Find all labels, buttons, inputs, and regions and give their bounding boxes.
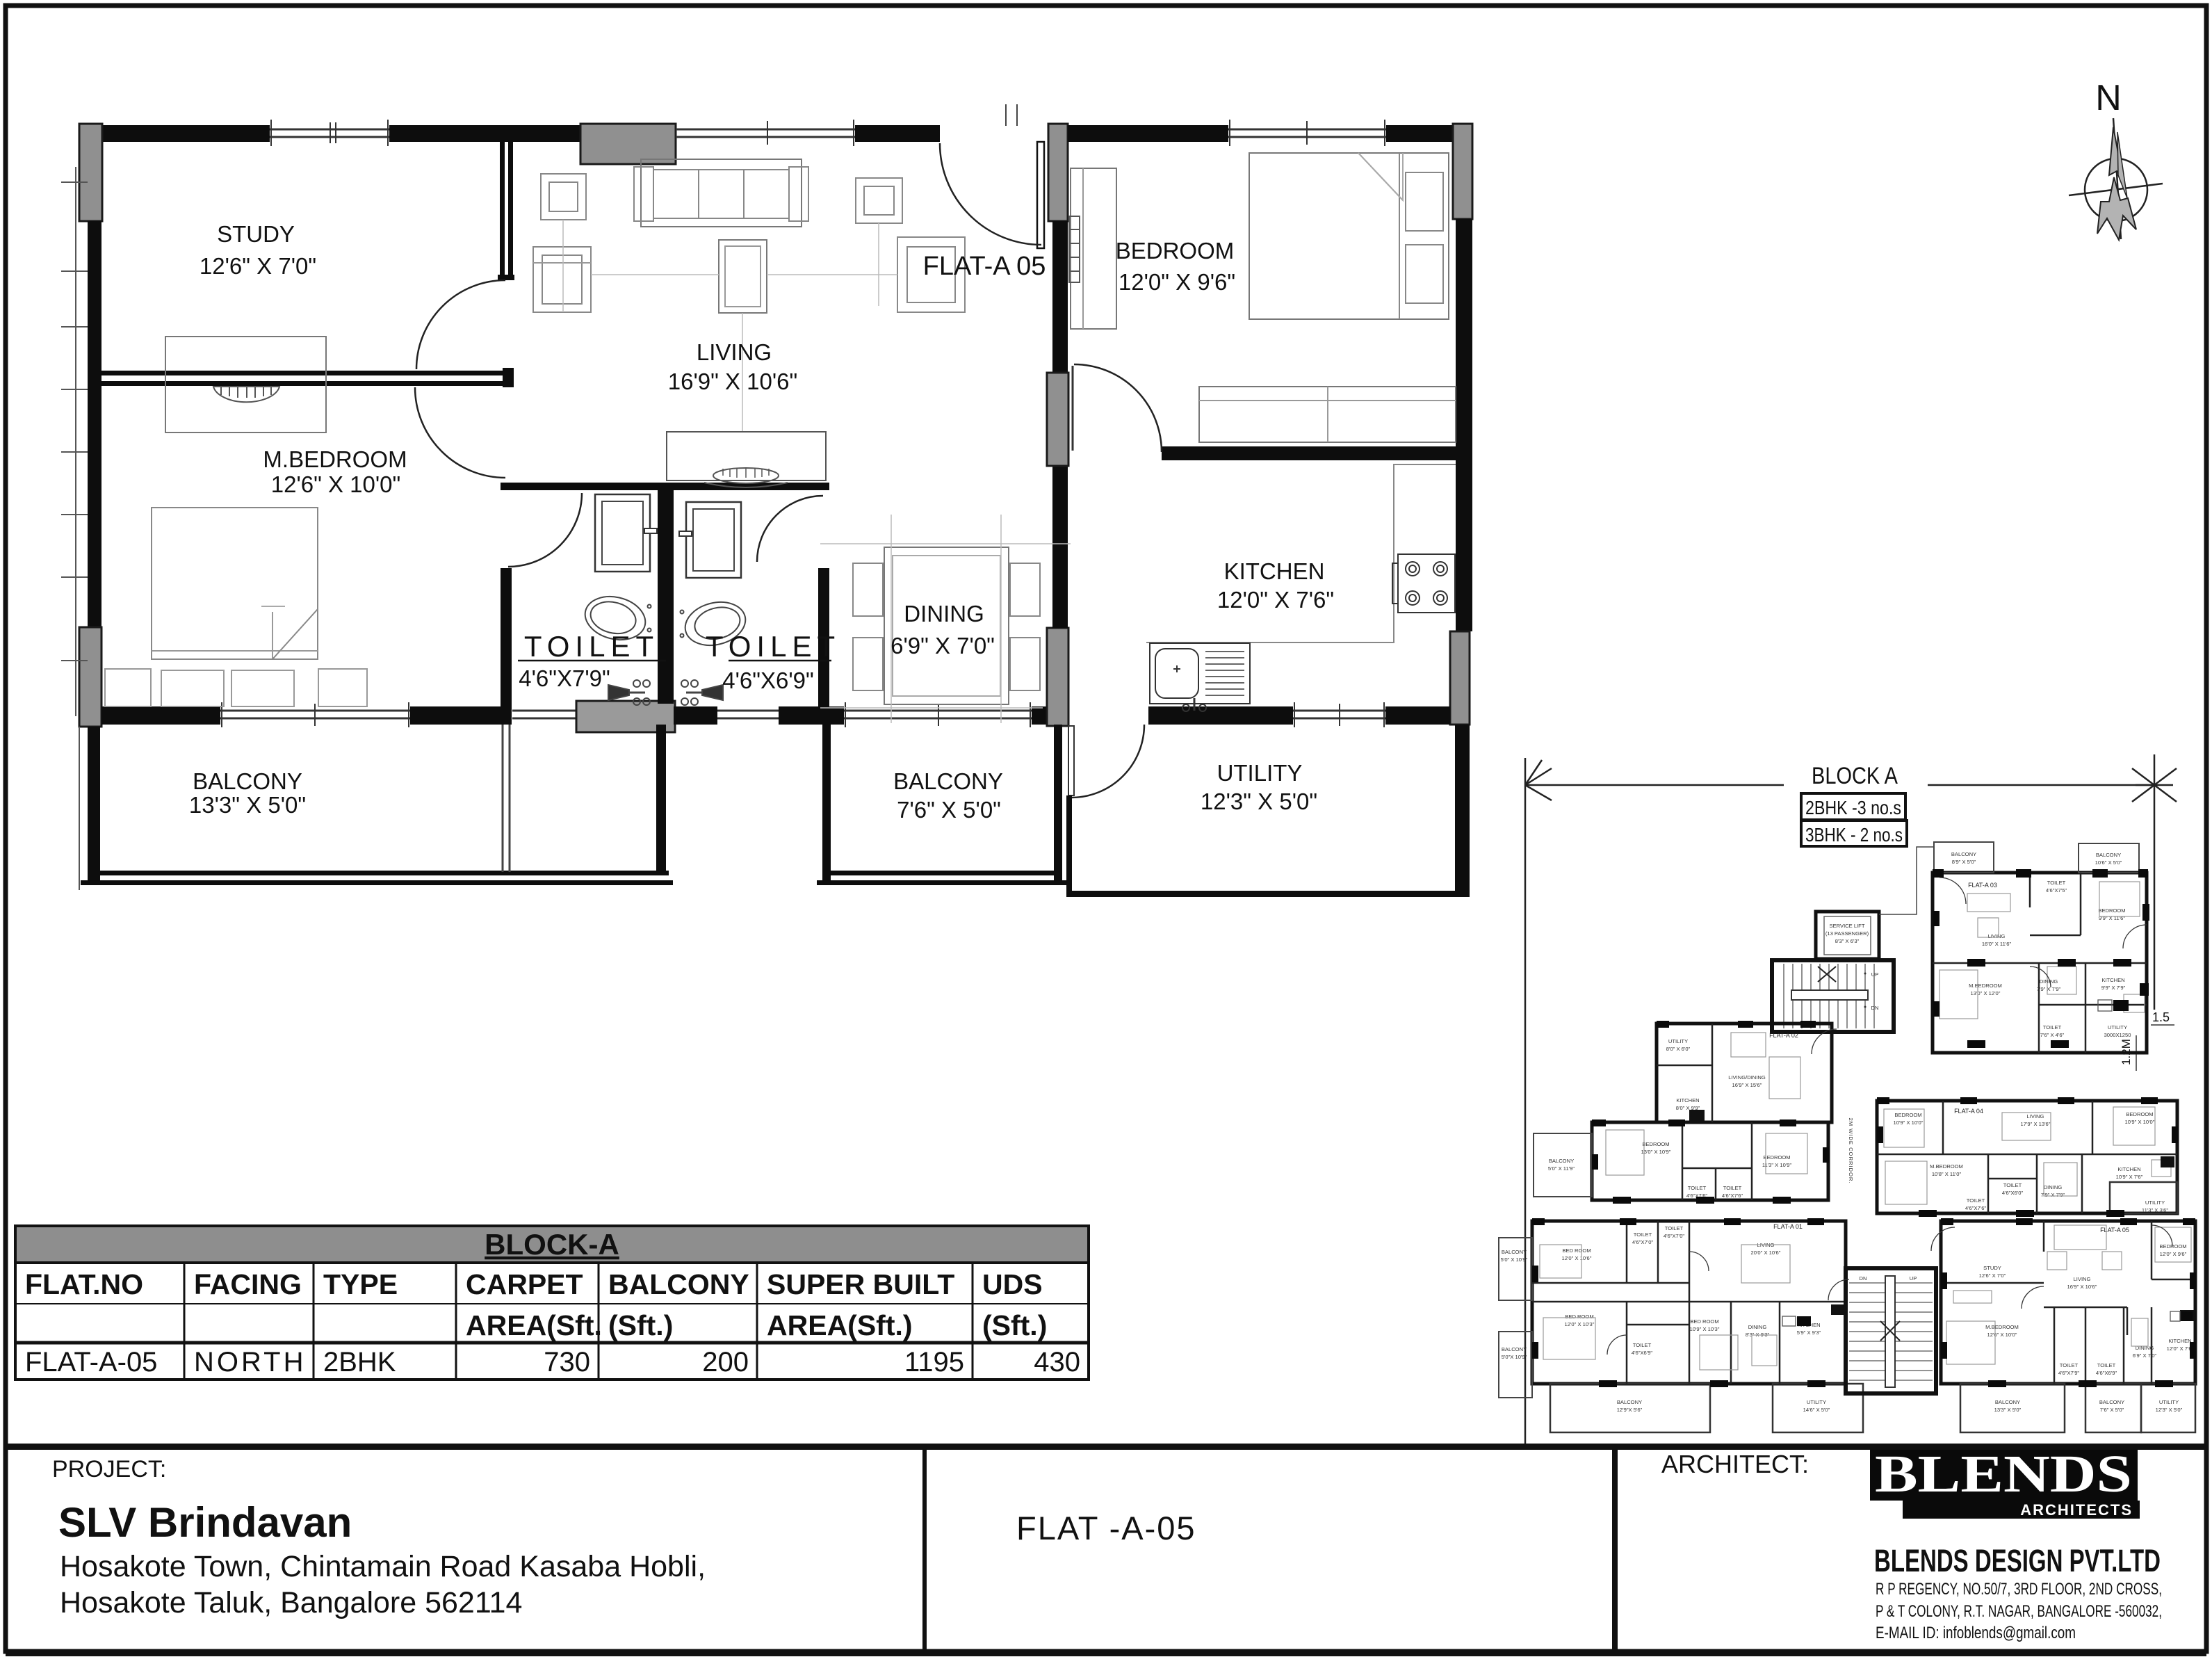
svg-text:BALCONY: BALCONY [608,1268,749,1300]
svg-text:DINING: DINING [1748,1324,1767,1330]
svg-text:3000X1250: 3000X1250 [2104,1032,2131,1038]
svg-text:8'3" X 6'3": 8'3" X 6'3" [1835,938,1860,944]
svg-text:12'0" X 10'6": 12'0" X 10'6" [1562,1255,1592,1261]
svg-text:KITCHEN: KITCHEN [1224,558,1325,584]
svg-text:AREA(Sft.: AREA(Sft. [466,1309,602,1341]
svg-text:UTILITY: UTILITY [1217,760,1303,786]
svg-text:12'6" X 7'0": 12'6" X 7'0" [200,253,316,279]
svg-text:5'9" X 9'3": 5'9" X 9'3" [1797,1329,1821,1336]
svg-text:ARCHITECT:: ARCHITECT: [1661,1450,1809,1478]
svg-text:BALCONY: BALCONY [1951,851,1976,857]
svg-text:4'6"X7'0": 4'6"X7'0" [1632,1239,1654,1245]
svg-text:BALCONY: BALCONY [1617,1399,1642,1405]
svg-text:TOILET: TOILET [1967,1197,1985,1204]
svg-text:SLV Brindavan: SLV Brindavan [58,1499,352,1546]
svg-text:FLAT -A-05: FLAT -A-05 [1016,1510,1196,1546]
svg-text:13'0" X 10'9": 13'0" X 10'9" [1641,1149,1671,1155]
svg-text:12'0" X 7'6": 12'0" X 7'6" [2167,1345,2194,1352]
svg-text:200: 200 [702,1347,749,1377]
svg-text:430: 430 [1034,1347,1080,1377]
svg-text:BALCONY: BALCONY [1549,1158,1574,1164]
svg-text:UTILITY: UTILITY [2145,1199,2165,1206]
svg-text:8'0" X 6'0": 8'0" X 6'0" [1666,1046,1691,1052]
svg-text:FACING: FACING [194,1268,302,1300]
svg-text:KITCHEN: KITCHEN [2117,1166,2140,1172]
svg-text:DINING: DINING [2044,1184,2063,1190]
svg-text:7'9" X 7'9": 7'9" X 7'9" [2041,1192,2065,1198]
svg-text:TOILET: TOILET [1665,1225,1684,1231]
svg-text:17'9" X 13'6": 17'9" X 13'6" [2021,1121,2051,1127]
svg-text:TYPE: TYPE [323,1268,398,1300]
svg-text:UTILITY: UTILITY [2108,1024,2127,1030]
svg-text:BEDROOM: BEDROOM [1642,1141,1669,1147]
svg-text:FLAT-A 03: FLAT-A 03 [1968,882,1997,889]
svg-text:5'0"X 10'9": 5'0"X 10'9" [1502,1354,1527,1360]
svg-text:BALCONY: BALCONY [1995,1399,2020,1405]
svg-text:SUPER BUILT: SUPER BUILT [767,1268,954,1300]
svg-text:BLOCK A: BLOCK A [1812,763,1898,789]
svg-text:N: N [2095,78,2122,118]
svg-text:Hosakote Taluk, Bangalore 5621: Hosakote Taluk, Bangalore 562114 [60,1586,522,1619]
svg-text:STUDY: STUDY [217,221,295,247]
svg-text:Hosakote Town, Chintamain Road: Hosakote Town, Chintamain Road Kasaba Ho… [60,1550,706,1583]
svg-text:FLAT-A 05: FLAT-A 05 [923,252,1046,281]
svg-text:UP: UP [1871,971,1879,978]
svg-text:BEDROOM: BEDROOM [2159,1243,2186,1250]
svg-text:(Sft.): (Sft.) [982,1309,1047,1341]
svg-text:TOILET: TOILET [2043,1024,2062,1030]
svg-text:13'3" X 5'0": 13'3" X 5'0" [189,792,306,818]
svg-text:TOILET: TOILET [706,630,840,663]
svg-text:16'0" X 11'6": 16'0" X 11'6" [1982,941,2012,947]
svg-text:FLAT-A-05: FLAT-A-05 [25,1347,157,1377]
svg-text:4'6"X6'9": 4'6"X6'9" [722,668,813,693]
svg-text:UTILITY: UTILITY [1668,1038,1688,1044]
svg-text:TOILET: TOILET [524,630,659,663]
svg-text:UDS: UDS [982,1268,1043,1300]
svg-text:12'6" X 10'0": 12'6" X 10'0" [271,471,401,497]
svg-text:16'9" X 10'6": 16'9" X 10'6" [2067,1284,2097,1290]
svg-text:11'3" X 10'9": 11'3" X 10'9" [1762,1162,1792,1168]
svg-text:BLOCK-A: BLOCK-A [485,1228,619,1261]
svg-text:ARCHITECTS: ARCHITECTS [2020,1501,2133,1519]
svg-text:7'6" X 5'0": 7'6" X 5'0" [2100,1407,2124,1413]
svg-text:7'6" X 4'6": 7'6" X 4'6" [2040,1032,2065,1038]
svg-text:M.BEDROOM: M.BEDROOM [1930,1163,1963,1170]
svg-text:13'0" X 12'0": 13'0" X 12'0" [1971,990,2001,996]
svg-text:730: 730 [544,1347,590,1377]
svg-text:16'9" X 10'6": 16'9" X 10'6" [668,369,798,394]
svg-text:R P REGENCY, NO.50/7, 3RD FLOO: R P REGENCY, NO.50/7, 3RD FLOOR, 2ND CRO… [1876,1580,2162,1599]
svg-text:LIVING: LIVING [2027,1113,2044,1120]
svg-text:LIVING: LIVING [2074,1276,2091,1282]
svg-text:8'9" X 5'0": 8'9" X 5'0" [1952,859,1976,865]
svg-text:BALCONY: BALCONY [193,768,302,794]
svg-text:2M WIDE CORRIDOR.: 2M WIDE CORRIDOR. [1848,1117,1854,1183]
svg-text:UTILITY: UTILITY [1807,1399,1826,1405]
svg-text:12'6" X 7'0": 12'6" X 7'0" [1979,1272,2006,1279]
svg-text:8'0" X 9'9": 8'0" X 9'9" [1676,1105,1700,1111]
svg-text:CARPET: CARPET [466,1268,583,1300]
svg-text:SERVICE LIFT: SERVICE LIFT [1830,923,1865,929]
svg-text:3BHK - 2 no.s: 3BHK - 2 no.s [1805,824,1903,846]
svg-text:4'6"X7'9": 4'6"X7'9" [2058,1370,2080,1376]
svg-text:KITCHEN: KITCHEN [2168,1338,2191,1344]
svg-text:10'9" X 10'0": 10'9" X 10'0" [2125,1119,2155,1125]
svg-text:STUDY: STUDY [1983,1265,2001,1271]
svg-text:1.5: 1.5 [2152,1010,2170,1024]
svg-text:16'9" X 15'6": 16'9" X 15'6" [1732,1082,1762,1088]
svg-text:20'0" X 10'6": 20'0" X 10'6" [1751,1250,1781,1256]
svg-text:DINING: DINING [904,601,984,627]
svg-text:FLAT-A 04: FLAT-A 04 [1954,1108,1983,1115]
svg-text:2BHK -3 no.s: 2BHK -3 no.s [1805,797,1901,818]
svg-text:BALCONY: BALCONY [2099,1399,2124,1405]
svg-text:11'3" X 3'6": 11'3" X 3'6" [2142,1207,2168,1213]
svg-text:1195: 1195 [904,1347,964,1377]
svg-text:BEDROOM: BEDROOM [1116,238,1235,264]
svg-text:M.BEDROOM: M.BEDROOM [1985,1324,2019,1330]
svg-text:AREA(Sft.): AREA(Sft.) [767,1309,913,1341]
svg-text:NORTH: NORTH [194,1347,306,1377]
svg-text:BED ROOM: BED ROOM [1565,1314,1593,1320]
svg-text:4'6"X7'0": 4'6"X7'0" [1664,1233,1685,1239]
svg-text:KITCHEN: KITCHEN [2101,977,2124,983]
svg-text:BED ROOM: BED ROOM [1562,1247,1591,1254]
svg-text:TOILET: TOILET [1634,1231,1652,1238]
svg-text:(13 PASSENGER): (13 PASSENGER) [1825,930,1869,937]
svg-text:TOILET: TOILET [1633,1342,1652,1348]
svg-text:7'6" X 5'0": 7'6" X 5'0" [897,797,1001,823]
svg-text:LIVING/DINING: LIVING/DINING [1728,1074,1766,1081]
svg-text:BLENDS: BLENDS [1875,1445,2132,1503]
svg-text:2BHK: 2BHK [323,1347,396,1377]
svg-text:TOILET: TOILET [2097,1362,2116,1368]
svg-text:DN: DN [1860,1275,1867,1282]
svg-text:13'3" X 5'0": 13'3" X 5'0" [1994,1407,2022,1413]
svg-text:4'6"X7'6": 4'6"X7'6" [1722,1193,1743,1199]
svg-text:P & T COLONY, R.T. NAGAR, BANG: P & T COLONY, R.T. NAGAR, BANGALORE -560… [1876,1602,2162,1621]
svg-text:10'8" X 11'0": 10'8" X 11'0" [1932,1171,1962,1177]
svg-text:UP: UP [1910,1275,1917,1282]
svg-text:12'0" X 7'6": 12'0" X 7'6" [1217,587,1334,613]
svg-text:10'9" X 10'0": 10'9" X 10'0" [1894,1120,1924,1126]
svg-text:DN: DN [1871,1005,1879,1011]
svg-text:5'0" X 10'9": 5'0" X 10'9" [1501,1256,1528,1263]
svg-text:14'6" X 5'0": 14'6" X 5'0" [1803,1407,1830,1413]
svg-text:12'9"X 5'6": 12'9"X 5'6" [1617,1407,1643,1413]
svg-text:LIVING: LIVING [1988,933,2006,939]
svg-text:M.BEDROOM: M.BEDROOM [263,446,407,472]
svg-text:7'9" X 7'9": 7'9" X 7'9" [2037,986,2061,992]
svg-text:BALCONY: BALCONY [1502,1346,1527,1352]
svg-text:BEDROOM: BEDROOM [1894,1112,1921,1118]
svg-text:9'9" X 11'6": 9'9" X 11'6" [2099,915,2125,921]
svg-text:4'6"X6'9": 4'6"X6'9" [2096,1370,2117,1376]
svg-text:M.BEDROOM: M.BEDROOM [1969,983,2002,989]
svg-text:6'9" X 7'0": 6'9" X 7'0" [2133,1352,2157,1359]
svg-text:12'0" X 9'6": 12'0" X 9'6" [1119,269,1235,295]
svg-text:12'0" X 9'6": 12'0" X 9'6" [2160,1251,2187,1257]
svg-text:9'9" X 7'9": 9'9" X 7'9" [2101,985,2126,991]
svg-text:BEDROOM: BEDROOM [2126,1111,2153,1117]
svg-text:BALCONY: BALCONY [893,768,1003,794]
svg-text:BEDROOM: BEDROOM [1763,1154,1790,1161]
svg-text:5'0" X 11'9": 5'0" X 11'9" [1548,1165,1575,1172]
svg-text:BED ROOM: BED ROOM [1690,1318,1718,1325]
svg-text:LIVING: LIVING [697,339,772,365]
svg-text:TOILET: TOILET [1688,1185,1707,1191]
svg-text:E-MAIL ID: infoblends@gmail.co: E-MAIL ID: infoblends@gmail.com [1876,1624,2076,1642]
svg-text:BALCONY: BALCONY [1502,1249,1527,1255]
svg-text:BLENDS DESIGN PVT.LTD: BLENDS DESIGN PVT.LTD [1874,1543,2161,1578]
svg-text:4'6"X7'6": 4'6"X7'6" [1965,1205,1987,1211]
svg-text:4'6"X7'5": 4'6"X7'5" [2046,887,2067,894]
svg-text:TOILET: TOILET [2047,880,2066,886]
svg-text:KITCHEN: KITCHEN [1676,1097,1699,1104]
svg-text:12'0" X 10'3": 12'0" X 10'3" [1565,1321,1595,1327]
svg-text:TOILET: TOILET [1723,1185,1742,1191]
svg-text:12'6" X 10'0": 12'6" X 10'0" [1987,1332,2017,1338]
svg-text:12'3" X 5'0": 12'3" X 5'0" [1201,789,1317,814]
svg-text:TOILET: TOILET [2060,1362,2079,1368]
svg-text:FLAT.NO: FLAT.NO [25,1268,143,1300]
svg-text:12'3" X 5'0": 12'3" X 5'0" [2156,1407,2183,1413]
svg-text:FLAT-A 01: FLAT-A 01 [1773,1223,1803,1230]
svg-text:(Sft.): (Sft.) [608,1309,673,1341]
svg-text:DINING: DINING [2136,1345,2154,1351]
svg-text:PROJECT:: PROJECT: [52,1456,166,1482]
svg-text:4'6"X6'0": 4'6"X6'0" [2002,1190,2024,1196]
svg-text:BALCONY: BALCONY [2096,852,2121,858]
svg-text:4'6"X6'9": 4'6"X6'9" [1632,1350,1653,1356]
svg-text:6'9" X 7'0": 6'9" X 7'0" [891,633,995,658]
svg-text:TOILET: TOILET [2003,1182,2022,1188]
svg-text:FLAT-A 05: FLAT-A 05 [2100,1227,2129,1234]
svg-text:4'6"X7'9": 4'6"X7'9" [519,665,610,691]
svg-text:FLAT-A 02: FLAT-A 02 [1769,1032,1798,1039]
svg-text:UTILITY: UTILITY [2159,1399,2179,1405]
svg-text:10'9" X 10'3": 10'9" X 10'3" [1690,1326,1720,1332]
svg-text:10'9" X 7'6": 10'9" X 7'6" [2116,1174,2143,1180]
svg-text:BEDROOM: BEDROOM [2098,907,2125,914]
svg-text:10'6" X 5'0": 10'6" X 5'0" [2095,859,2122,866]
